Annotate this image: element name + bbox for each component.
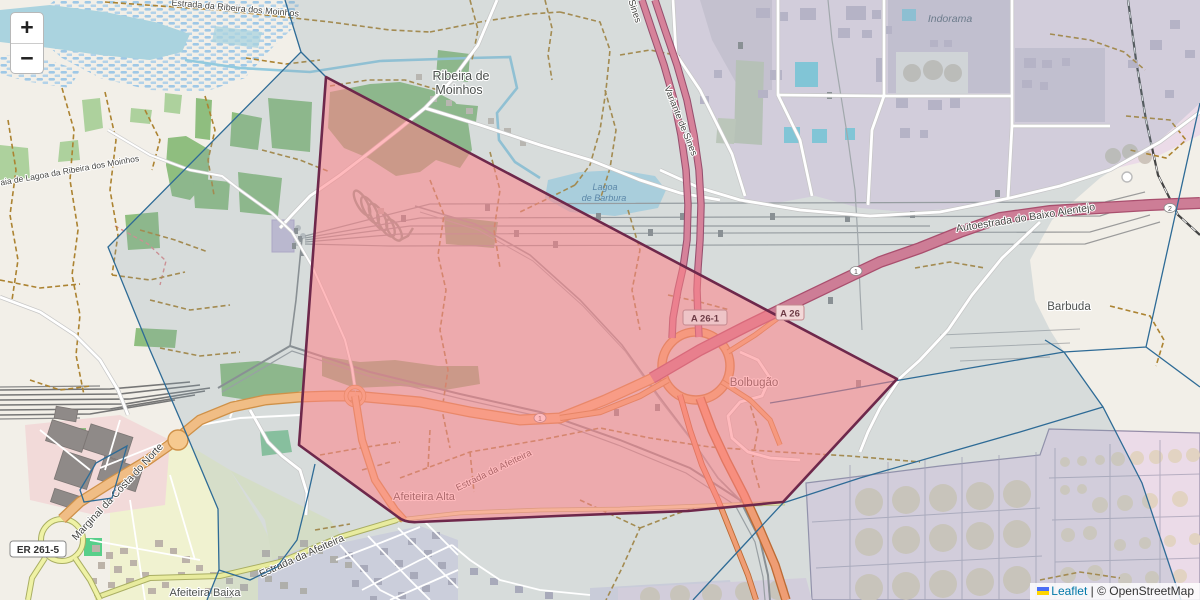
svg-text:1: 1 <box>854 269 858 276</box>
svg-text:Lagoa: Lagoa <box>592 182 617 192</box>
svg-text:Barbuda: Barbuda <box>1047 301 1091 313</box>
svg-text:A 26-1: A 26-1 <box>691 314 720 325</box>
svg-text:ER 261-5: ER 261-5 <box>17 545 60 556</box>
svg-text:Indorama: Indorama <box>928 13 973 25</box>
svg-text:A 26: A 26 <box>780 309 800 320</box>
svg-text:Ribeira de: Ribeira de <box>433 69 490 83</box>
svg-text:de Barbura: de Barbura <box>582 193 627 203</box>
svg-text:Moinhos: Moinhos <box>435 83 482 97</box>
svg-text:Afeiteira Baixa: Afeiteira Baixa <box>170 587 242 599</box>
svg-text:2: 2 <box>1168 206 1172 213</box>
